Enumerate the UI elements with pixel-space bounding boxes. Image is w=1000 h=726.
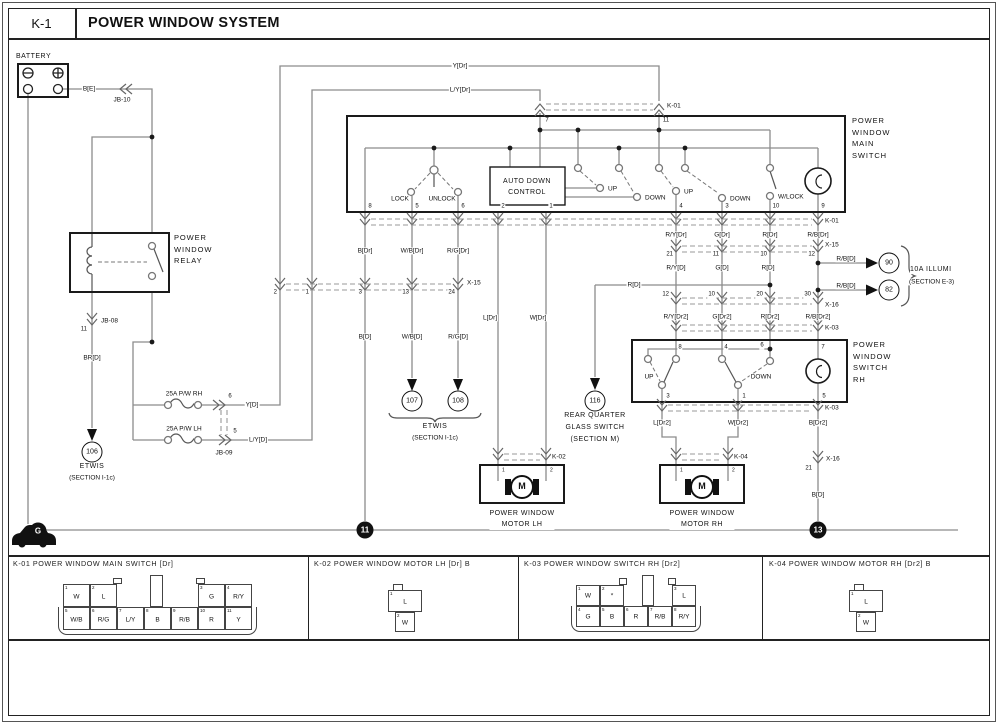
cell-pin-number: 2 xyxy=(858,613,861,618)
cell-pin-number: 3 xyxy=(200,585,203,590)
rear-quarter-label: GLASS SWITCH xyxy=(566,424,625,432)
pin-label: 5 xyxy=(232,429,237,436)
cell-pin-number: 8 xyxy=(146,608,149,613)
connector-pin-cell: 1L xyxy=(849,590,883,612)
wire-label: R[D] xyxy=(761,264,776,271)
pin-label: 5 xyxy=(821,394,826,401)
section-label: (SECTION M) xyxy=(570,436,619,444)
motor-symbol-letter: M xyxy=(518,482,526,492)
circuit-ref-badge: 90 xyxy=(879,253,900,274)
wire-label: R/B[D] xyxy=(835,282,856,289)
page-code: K-1 xyxy=(8,8,75,38)
cell-pin-number: 1 xyxy=(65,585,68,590)
connector-latch-tab xyxy=(150,575,163,607)
wire-junction-dot xyxy=(816,261,821,266)
cell-wire-code: L/Y xyxy=(118,616,143,623)
wire-label: W/B[D] xyxy=(401,333,424,340)
cell-wire-code: L xyxy=(673,593,695,600)
switch-pos-label: DOWN xyxy=(644,194,667,201)
wire-junction-dot xyxy=(538,128,543,133)
connector-label: X-16 xyxy=(824,301,840,308)
wire-junction-dot xyxy=(150,340,155,345)
cell-pin-number: 1 xyxy=(851,591,854,596)
illumi-brace xyxy=(901,246,915,306)
pin-label: 11 xyxy=(712,252,720,259)
cell-wire-code: L xyxy=(91,593,116,600)
wire-label: R/Y[D] xyxy=(665,264,686,271)
connector-pin-cell: 2W xyxy=(856,612,876,632)
switch-pos-label: LOCK xyxy=(390,195,410,202)
switch-pos-label: DOWN xyxy=(729,195,752,202)
fuse-label: 25A P/W RH xyxy=(165,390,203,397)
pin-label: 7 xyxy=(544,118,549,125)
switch-pos-label: UP xyxy=(643,373,654,380)
connector-pin-cell: 4G xyxy=(576,606,600,627)
wire-label: W/B[Dr] xyxy=(400,247,425,254)
connector-pin-cell: 2W xyxy=(395,612,415,632)
wire-label: R/B[D] xyxy=(835,255,856,262)
switch-pos-label: UP xyxy=(683,188,694,195)
switch-pos-label: UP xyxy=(607,185,618,192)
cell-wire-code: R/G xyxy=(91,616,116,623)
pin-label: 20 xyxy=(755,292,764,299)
cell-wire-code: R/Y xyxy=(673,614,695,621)
wire-junction-dot xyxy=(150,135,155,140)
wire-junction-dot xyxy=(508,146,513,151)
switch-pos-label: UNLOCK xyxy=(427,195,456,202)
cell-pin-number: 6 xyxy=(626,607,629,612)
connector-label: K-03 xyxy=(824,404,840,411)
wire-label: Y[Dr] xyxy=(452,62,469,69)
cell-wire-code: Y xyxy=(226,616,251,623)
panel-title-k02: K-02 POWER WINDOW MOTOR LH [Dr] B xyxy=(314,559,470,568)
pin-label: 1 xyxy=(502,468,505,474)
connector-pin-cell: 8B xyxy=(144,607,171,630)
connector-label: K-01 xyxy=(824,217,840,224)
pin-label: 7 xyxy=(820,345,825,352)
wire-junction-dot xyxy=(617,146,622,151)
panel-title-k04: K-04 POWER WINDOW MOTOR RH [Dr2] B xyxy=(769,559,931,568)
pin-label: 6 xyxy=(759,343,764,350)
connector-pin-cell: 6R xyxy=(624,606,648,627)
wire-label: W[Dr] xyxy=(529,314,548,321)
etwis-label: ETWIS xyxy=(423,423,448,431)
wire-label: G[Dr] xyxy=(713,231,731,238)
pin-label: 5 xyxy=(414,204,419,211)
ground-badge: G xyxy=(30,523,47,540)
wire-label: L/Y[D] xyxy=(248,436,268,443)
circuit-ref-badge: 82 xyxy=(879,280,900,301)
pin-label: 3 xyxy=(724,204,729,211)
cell-pin-number: 5 xyxy=(65,608,68,613)
cell-wire-code: G xyxy=(577,614,599,621)
connector-pin-cell: 7R/B xyxy=(648,606,672,627)
wire-junction-dot xyxy=(683,146,688,151)
motor-icons xyxy=(505,476,719,498)
connector-pin-cell: 11Y xyxy=(225,607,252,630)
motor-symbol-letter: M xyxy=(698,482,706,492)
ground-badge: 13 xyxy=(810,522,827,539)
wire-label: R/G[Dr] xyxy=(446,247,470,254)
cell-pin-number: 5 xyxy=(602,607,605,612)
rear-quarter-label: REAR QUARTER xyxy=(564,412,626,420)
cell-wire-code: W/B xyxy=(64,616,89,623)
connector-label: JB-10 xyxy=(113,96,132,103)
pin-label: 2 xyxy=(732,468,735,474)
section-label: (SECTION I-1c) xyxy=(68,474,116,481)
wire-junction-dot xyxy=(432,146,437,151)
wire-label: B[D] xyxy=(358,333,373,340)
cell-pin-number: 6 xyxy=(92,608,95,613)
wire-junction-dot xyxy=(816,288,821,293)
cell-wire-code: R/Y xyxy=(226,593,251,600)
cell-wire-code: R xyxy=(199,616,224,623)
etwis-bracket xyxy=(389,413,481,422)
panel-title-k01: K-01 POWER WINDOW MAIN SWITCH [Dr] xyxy=(13,559,173,568)
connector-label: X-16 xyxy=(825,455,841,462)
wire-label: BR[D] xyxy=(82,354,101,361)
cell-pin-number: 4 xyxy=(227,585,230,590)
pin-label: 12 xyxy=(807,252,816,259)
connector-label: K-04 xyxy=(733,453,749,460)
pin-label: 10 xyxy=(772,204,781,211)
cell-wire-code: B xyxy=(145,616,170,623)
connector-label: K-01 xyxy=(666,102,682,109)
connector-label: K-02 xyxy=(551,453,567,460)
connector-latch-tab xyxy=(619,578,627,585)
ground-badge: 11 xyxy=(357,522,374,539)
switch-pos-label: W/LOCK xyxy=(777,193,805,200)
pin-label: 12 xyxy=(661,292,670,299)
wire-label: R[Dr2] xyxy=(760,313,781,320)
cell-pin-number: 7 xyxy=(119,608,122,613)
connector-pin-cell: 9R/B xyxy=(171,607,198,630)
pin-label: 11 xyxy=(662,118,670,125)
wire-label: R/Y[Dr2] xyxy=(663,313,690,320)
connector-pin-cell: 5B xyxy=(600,606,624,627)
cell-wire-code: R xyxy=(625,614,647,621)
connector-pin-cell: 8R/Y xyxy=(672,606,696,627)
pin-label: 11 xyxy=(80,327,88,334)
wire-label: W[Dr2] xyxy=(727,419,749,426)
wiring-diagram-page: K-1 POWER WINDOW SYSTEM K-01 POWER WINDO… xyxy=(0,0,1000,726)
pin-label: 24 xyxy=(447,290,456,297)
cell-pin-number: 2 xyxy=(602,586,605,591)
wire-label: R/Y[Dr] xyxy=(664,231,687,238)
cell-wire-code: B xyxy=(601,614,623,621)
circuit-ref-badge: 107 xyxy=(402,391,423,412)
cell-wire-code: W xyxy=(577,593,599,600)
pin-label: 1 xyxy=(680,468,683,474)
pin-label: 13 xyxy=(401,290,410,297)
circuit-ref-badge: 108 xyxy=(448,391,469,412)
connector-pin-cell: 2* xyxy=(600,585,624,606)
wire-junction-dot xyxy=(657,128,662,133)
wire-label: B[Dr2] xyxy=(808,419,828,426)
connector-label: JB-09 xyxy=(215,449,234,456)
page-title: POWER WINDOW SYSTEM xyxy=(88,8,280,38)
connector-label: X-15 xyxy=(824,241,840,248)
connector-pin-cell: 10R xyxy=(198,607,225,630)
connector-pin-cell: 1W xyxy=(63,584,90,607)
rh-switch-label: POWER WINDOW SWITCH RH xyxy=(853,339,891,385)
pin-label: 4 xyxy=(723,345,728,352)
pin-label: 8 xyxy=(367,204,372,211)
wire-label: G[D] xyxy=(714,264,729,271)
motor-rh-label: POWER WINDOW MOTOR RH xyxy=(669,508,734,530)
pin-label: 30 xyxy=(803,292,812,299)
cell-pin-number: 2 xyxy=(92,585,95,590)
cell-wire-code: L xyxy=(850,599,882,606)
pin-label: 3 xyxy=(665,394,670,401)
pin-label: 6 xyxy=(227,394,232,401)
battery-label: BATTERY xyxy=(16,53,51,61)
connector-pin-cell: 1W xyxy=(576,585,600,606)
cell-wire-code: W xyxy=(857,619,875,626)
pin-label: 8 xyxy=(677,345,682,352)
relay-coil xyxy=(87,233,92,292)
wire-junction-dot xyxy=(768,283,773,288)
pin-label: 4 xyxy=(678,204,683,211)
pin-label: 21 xyxy=(804,466,813,473)
wire-label: L[Dr] xyxy=(482,314,498,321)
pin-label: 1 xyxy=(548,204,553,211)
wire-label: R/G[D] xyxy=(447,333,469,340)
connector-pin-cell: 1L xyxy=(388,590,422,612)
pin-label: 21 xyxy=(665,252,674,259)
wire-label: R/B[Dr2] xyxy=(805,313,832,320)
wire-label: L[Dr2] xyxy=(652,419,672,426)
cell-wire-code: G xyxy=(199,593,224,600)
section-label: (SECTION I-1c) xyxy=(411,434,459,441)
main-switch-label: POWER WINDOW MAIN SWITCH xyxy=(852,115,890,161)
wire-label: Y[D] xyxy=(245,401,260,408)
motor-lh-label: POWER WINDOW MOTOR LH xyxy=(489,508,554,530)
illumi-label: 10A ILLUMI xyxy=(910,266,952,274)
cell-pin-number: 2 xyxy=(397,613,400,618)
wire-label: G[Dr2] xyxy=(711,313,732,320)
auto-down-control-label: AUTO DOWN CONTROL xyxy=(503,176,551,198)
cell-pin-number: 7 xyxy=(650,607,653,612)
cell-wire-code: W xyxy=(396,619,414,626)
switch-pos-label: DOWN xyxy=(750,373,773,380)
wire-label: B[E] xyxy=(82,85,96,92)
pin-label: 3 xyxy=(358,290,363,297)
connector-latch-tab xyxy=(668,578,676,585)
pin-label: 10 xyxy=(707,292,716,299)
cell-wire-code: L xyxy=(389,599,421,606)
section-label: (SECTION E-3) xyxy=(908,278,955,285)
etwis-label: ETWIS xyxy=(80,463,105,471)
fuse-element xyxy=(170,399,194,443)
connector-pin-cell: 2L xyxy=(90,584,117,607)
cell-pin-number: 3 xyxy=(674,586,677,591)
relay-label: POWER WINDOW RELAY xyxy=(174,232,212,267)
wire-label: R[D] xyxy=(627,281,642,288)
connector-pin-cell: 4R/Y xyxy=(225,584,252,607)
cell-pin-number: 4 xyxy=(578,607,581,612)
cell-pin-number: 1 xyxy=(578,586,581,591)
connector-latch-tab xyxy=(642,575,654,606)
connector-label: JB-08 xyxy=(100,317,119,324)
wire-label: B[Dr] xyxy=(357,247,374,254)
fuse-label: 25A P/W LH xyxy=(165,425,202,432)
cell-wire-code: W xyxy=(64,593,89,600)
pin-label: 2 xyxy=(273,290,278,297)
cell-pin-number: 10 xyxy=(200,608,205,613)
cell-wire-code: * xyxy=(601,593,623,600)
wire-label: R[Dr] xyxy=(761,231,778,238)
pin-label: 9 xyxy=(820,204,825,211)
connector-label: X-15 xyxy=(466,279,482,286)
cell-pin-number: 1 xyxy=(390,591,393,596)
battery-terminals xyxy=(23,68,63,94)
wire-label: R/B[Dr] xyxy=(806,231,829,238)
cell-pin-number: 8 xyxy=(674,607,677,612)
cell-wire-code: R/B xyxy=(172,616,197,623)
circuit-ref-badge: 116 xyxy=(585,391,606,412)
wire-label: L/Y[Dr] xyxy=(449,86,471,93)
pin-label: 1 xyxy=(305,290,310,297)
pin-label: 2 xyxy=(500,204,505,211)
cell-pin-number: 9 xyxy=(173,608,176,613)
circuit-ref-badge: 106 xyxy=(82,442,103,463)
wire-junction-dot xyxy=(576,128,581,133)
pin-label: 10 xyxy=(759,252,768,259)
wire-junction-dot xyxy=(768,347,773,352)
pin-label: 1 xyxy=(741,394,746,401)
connector-pin-cell: 7L/Y xyxy=(117,607,144,630)
connector-pin-cell: 6R/G xyxy=(90,607,117,630)
connector-pin-cell: 5W/B xyxy=(63,607,90,630)
connector-pin-cell: 3L xyxy=(672,585,696,606)
connector-label: K-03 xyxy=(824,324,840,331)
panel-title-k03: K-03 POWER WINDOW SWITCH RH [Dr2] xyxy=(524,559,680,568)
wire-label: B[D] xyxy=(811,491,826,498)
cell-wire-code: R/B xyxy=(649,614,671,621)
connector-pin-cell: 3G xyxy=(198,584,225,607)
pin-label: 2 xyxy=(550,468,553,474)
cell-pin-number: 11 xyxy=(227,608,232,613)
pin-label: 6 xyxy=(460,204,465,211)
